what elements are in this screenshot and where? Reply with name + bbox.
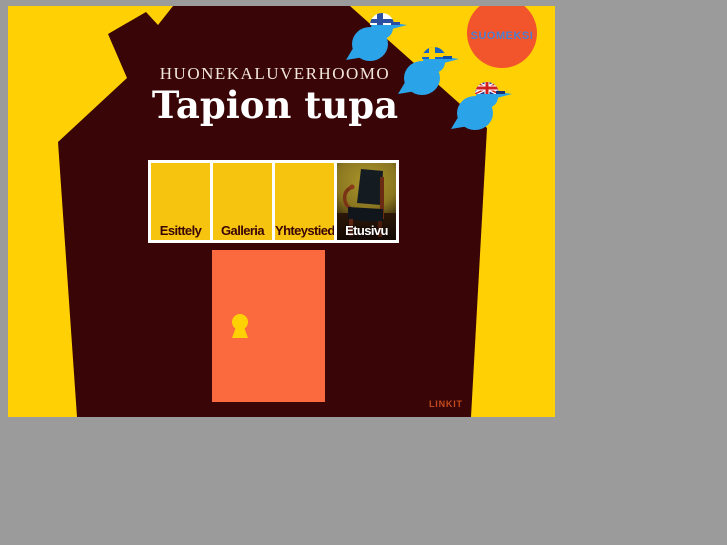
union-jack-cap-bird[interactable]	[449, 77, 513, 135]
linkit-link[interactable]: LINKIT	[429, 399, 463, 409]
nav-item-galleria[interactable]: Galleria	[213, 163, 272, 240]
nav-item-etusivu[interactable]: Etusivu	[337, 163, 396, 240]
site-canvas: HUONEKALUVERHOOMO Tapion tupa SUOMEKSI	[8, 6, 555, 417]
suomeksi-label: SUOMEKSI	[471, 30, 534, 42]
nav-label: Esittely	[151, 223, 210, 238]
nav-label: Yhteystied.	[275, 223, 334, 238]
nav-item-esittely[interactable]: Esittely	[151, 163, 210, 240]
main-nav: Esittely Galleria Yhteystied.	[148, 160, 399, 243]
nav-label: Etusivu	[337, 223, 396, 238]
keyhole-icon	[227, 313, 255, 347]
bird-icon	[449, 77, 513, 135]
nav-item-yhteystiedot[interactable]: Yhteystied.	[275, 163, 334, 240]
front-door[interactable]	[212, 250, 325, 402]
nav-label: Galleria	[213, 223, 272, 238]
